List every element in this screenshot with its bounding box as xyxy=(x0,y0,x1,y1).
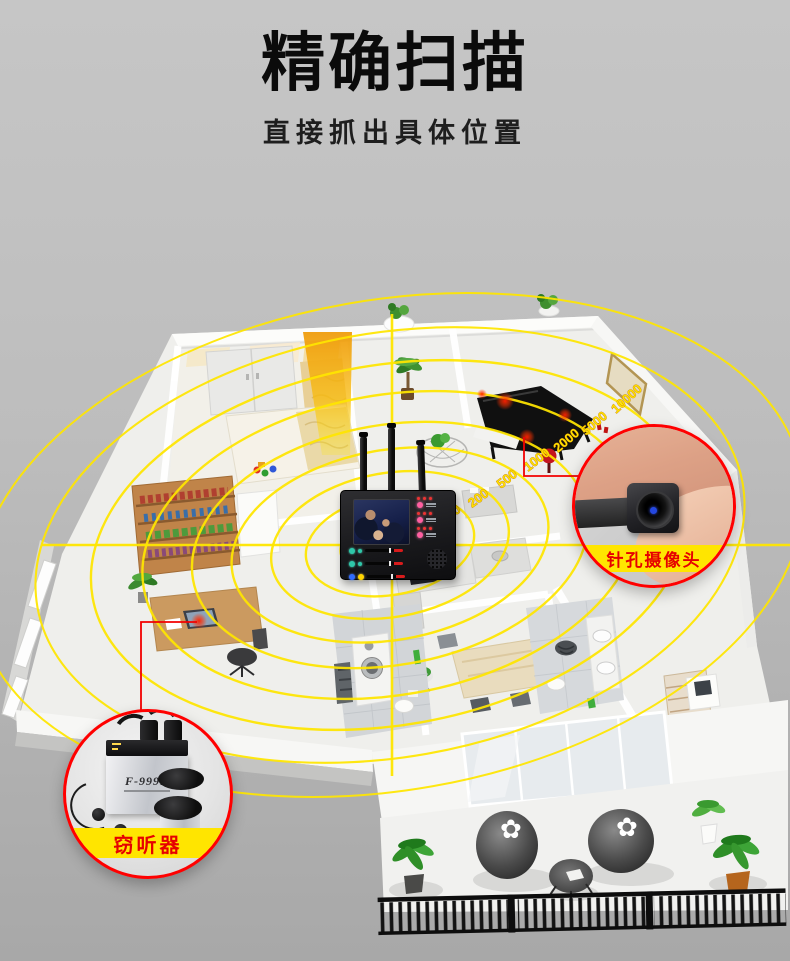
device-subtitle-line xyxy=(124,790,170,792)
page-subtitle: 直接抓出具体位置 xyxy=(0,111,790,150)
wardrobe xyxy=(206,346,297,415)
led-group xyxy=(417,497,451,508)
detection-glow xyxy=(496,392,514,410)
slider xyxy=(349,547,413,554)
led-group xyxy=(417,527,451,538)
callout-wiretap: F-999B 窃听器 xyxy=(63,709,233,879)
device-top-panel xyxy=(106,740,188,756)
speaker-grille-icon xyxy=(427,549,447,569)
beanbag-chair: ✿ xyxy=(476,811,538,879)
antenna-icon xyxy=(360,436,367,492)
plant xyxy=(384,303,414,332)
led-group xyxy=(417,512,451,523)
detection-glow xyxy=(191,613,207,629)
slider xyxy=(349,560,413,567)
wiretap-label: 窃听器 xyxy=(63,828,233,858)
bathroom xyxy=(332,604,432,738)
magnet-disc xyxy=(158,768,204,790)
led-icon xyxy=(417,532,423,538)
magnet-disc xyxy=(154,796,202,820)
bathroom xyxy=(526,597,624,714)
led-icon xyxy=(417,502,423,508)
led-panel xyxy=(417,497,451,538)
camera-cable xyxy=(572,497,634,528)
page-title: 精确扫描 xyxy=(0,30,790,97)
slider-panel xyxy=(349,547,413,580)
led-icon xyxy=(417,517,423,523)
pinhole-camera xyxy=(627,483,679,533)
pinhole-camera-label: 针孔摄像头 xyxy=(572,545,736,572)
detection-glow xyxy=(558,408,572,422)
flower-icon: ✿ xyxy=(500,814,522,844)
antenna-icon xyxy=(417,444,426,492)
detector-device xyxy=(338,424,456,580)
promo-image: 精确扫描 直接抓出具体位置 xyxy=(0,0,790,961)
bookshelf xyxy=(132,476,240,576)
detector-screen xyxy=(353,499,410,545)
detector-body xyxy=(340,490,456,580)
antenna-icon xyxy=(388,427,395,492)
detection-glow xyxy=(477,389,487,399)
beanbag-chair: ✿ xyxy=(588,809,654,873)
detection-glow xyxy=(519,429,535,445)
callout-pinhole-camera: 针孔摄像头 xyxy=(572,424,736,588)
header: 精确扫描 直接抓出具体位置 xyxy=(0,30,790,150)
lens-glint xyxy=(650,507,657,514)
flower-icon: ✿ xyxy=(616,812,638,842)
earbud-icon xyxy=(92,808,105,821)
camera-lens-icon xyxy=(636,491,674,529)
slider xyxy=(349,573,413,580)
